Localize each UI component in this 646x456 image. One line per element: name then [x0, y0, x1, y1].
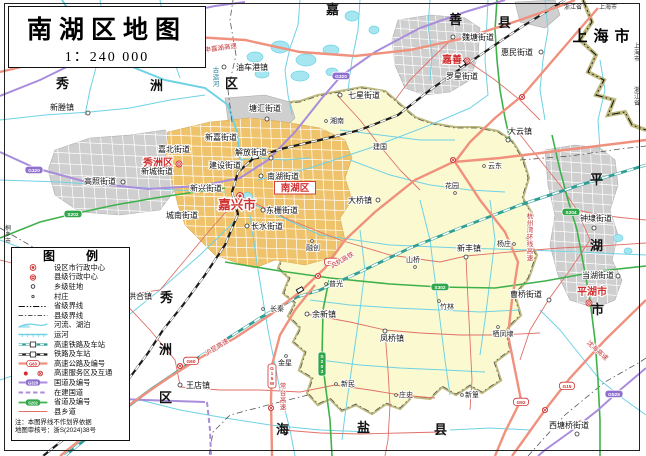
map-label-金星: 金星	[278, 358, 292, 367]
map-label-七星街道: 七星街道	[348, 90, 380, 100]
map-label-塘汇街道: 塘汇街道	[249, 103, 281, 113]
map-label-申嘉湖高速: 申嘉湖高速	[204, 41, 238, 55]
legend-label: 国道及编号	[54, 378, 90, 388]
svg-text:秀: 秀	[159, 290, 174, 305]
legend-label: 省道及编号	[54, 397, 90, 407]
svg-text:东栅街道: 东栅街道	[266, 205, 298, 215]
svg-text:盐: 盐	[357, 420, 371, 435]
svg-text:嘉: 嘉	[325, 2, 340, 17]
map-label-竹林: 竹林	[440, 302, 454, 311]
map-label-曹桥街道: 曹桥街道	[510, 289, 542, 299]
svg-text:塘汇街道: 塘汇街道	[249, 103, 281, 113]
symbol-interchange	[542, 407, 547, 412]
legend-label: 河流、湖泊	[54, 320, 90, 330]
legend-label: 村庄	[54, 292, 69, 302]
svg-text:栖凤埭: 栖凤埭	[493, 329, 514, 338]
symbol-village	[497, 326, 500, 329]
road-badge-G15W: G15W	[268, 364, 276, 388]
map-label-平: 平	[590, 172, 604, 187]
legend-label: 运河	[54, 330, 69, 340]
svg-text:G320: G320	[28, 168, 40, 174]
legend-label: 乡级驻地	[54, 282, 83, 292]
svg-text:平湖市: 平湖市	[577, 285, 607, 298]
map-label-沪昆高速: 沪昆高速	[203, 336, 230, 358]
map-scale: 1：240 000	[9, 46, 205, 66]
symbol-interchange	[268, 405, 273, 410]
symbol-town	[506, 138, 510, 142]
svg-text:罗星街道: 罗星街道	[446, 71, 478, 81]
legend: 图 例 设区市行政中心县级行政中心乡级驻地村庄省级界线县级界线河流、湖泊运河高速…	[11, 247, 130, 441]
map-label-大桥镇: 大桥镇	[348, 195, 372, 205]
legend-symbol-natl: G320	[15, 378, 51, 387]
map-label-县: 县	[498, 15, 512, 30]
map-label-新篁: 新篁	[465, 390, 479, 399]
svg-text:庄史: 庄史	[399, 390, 413, 399]
svg-text:湖: 湖	[590, 238, 604, 253]
symbol-town	[261, 208, 265, 212]
symbol-town	[178, 383, 182, 387]
svg-text:嘉兴市: 嘉兴市	[217, 197, 256, 212]
legend-symbol-city	[15, 263, 51, 272]
svg-text:新兴街道: 新兴街道	[190, 183, 222, 193]
svg-text:海: 海	[276, 422, 290, 437]
legend-note-boundary: 注：本图界线不作划界依据	[15, 419, 126, 427]
map-label-新丰镇: 新丰镇	[457, 243, 481, 253]
legend-item: 省级界线	[15, 301, 126, 311]
svg-text:当湖街道: 当湖街道	[582, 270, 614, 280]
symbol-village	[335, 383, 338, 386]
svg-text:七星街道: 七星街道	[348, 90, 380, 100]
road-badge-G60: G60	[184, 357, 199, 365]
svg-text:G525: G525	[608, 392, 620, 398]
symbol-town	[547, 298, 551, 302]
map-label-市: 市	[591, 302, 605, 317]
svg-text:洲: 洲	[150, 78, 164, 93]
legend-symbol-village	[15, 292, 51, 301]
map-label-洪合镇: 洪合镇	[128, 291, 152, 301]
svg-text:竹林: 竹林	[440, 302, 454, 311]
road-badge-S203: S203	[318, 352, 326, 376]
svg-text:浙江省: 浙江省	[634, 86, 640, 107]
map-page: S12G60G60G15WG92G15G524G320G320G525S202S…	[0, 0, 646, 456]
legend-symbol-natlc	[15, 388, 51, 397]
svg-text:沪昆高速: 沪昆高速	[203, 336, 230, 358]
map-label-建设街道: 建设街道	[209, 160, 241, 170]
svg-text:洪合镇: 洪合镇	[128, 291, 152, 301]
map-label-县: 县	[434, 422, 448, 437]
road-badge-S302: S302	[431, 283, 449, 291]
legend-label: 县级界线	[54, 311, 83, 321]
symbol-town	[464, 255, 468, 259]
svg-text:融创: 融创	[306, 243, 320, 252]
legend-item: 县级行政中心	[15, 273, 126, 283]
svg-text:G60: G60	[186, 359, 195, 365]
map-label-余新镇: 余新镇	[312, 309, 336, 319]
symbol-village	[454, 192, 457, 195]
map-label-魏塘街道: 魏塘街道	[462, 32, 494, 42]
svg-text:上海市: 上海市	[572, 27, 635, 45]
map-label-南湖区: 南湖区	[275, 182, 316, 195]
svg-text:市: 市	[591, 302, 605, 317]
map-label-嘉: 嘉	[325, 2, 340, 17]
svg-text:长水街道: 长水街道	[251, 221, 283, 231]
legend-item: 在建国道	[15, 388, 126, 398]
map-label-嘉善: 嘉善	[441, 53, 462, 66]
map-label-城南街道: 城南街道	[166, 210, 198, 220]
map-label-当湖街道: 当湖街道	[582, 270, 614, 280]
map-label-花园: 花园	[445, 181, 459, 190]
symbol-town	[383, 329, 387, 333]
legend-item: 铁路及车站	[15, 349, 126, 359]
legend-symbol-canal	[15, 330, 51, 339]
road-badge-G15: G15	[560, 382, 575, 390]
legend-title: 图 例	[15, 250, 126, 263]
legend-label: 省级界线	[54, 301, 83, 311]
symbol-interchange	[450, 157, 455, 162]
map-label-古运河: 古运河	[213, 65, 220, 88]
map-label-长水街道: 长水街道	[251, 221, 283, 231]
map-label-善: 善	[449, 12, 463, 27]
legend-symbol-cntyb	[15, 311, 51, 320]
map-label-杨庄: 杨庄	[497, 239, 511, 248]
legend-notes: 注：本图界线不作划界依据 地图审核号：浙S(2024)38号	[15, 419, 126, 435]
legend-label: 县级行政中心	[54, 272, 98, 282]
svg-text:上海市: 上海市	[599, 3, 617, 11]
svg-text:平: 平	[590, 172, 604, 187]
legend-symbol-rail	[15, 350, 51, 359]
map-label-王店镇: 王店镇	[186, 380, 210, 390]
map-label-新民: 新民	[341, 379, 355, 388]
svg-text:G320: G320	[335, 74, 347, 80]
symbol-town	[376, 198, 380, 202]
legend-label: 高速公路及编号	[54, 359, 105, 369]
map-label-秀: 秀	[55, 76, 70, 91]
svg-text:凤桥镇: 凤桥镇	[380, 333, 404, 343]
legend-items: 设区市行政中心县级行政中心乡级驻地村庄省级界线县级界线河流、湖泊运河高速铁路及车…	[15, 263, 126, 417]
symbol-village	[262, 308, 265, 311]
svg-text:G92: G92	[516, 400, 525, 406]
map-label-常台高速: 常台高速	[280, 381, 287, 411]
svg-text:新城街道: 新城街道	[141, 166, 173, 176]
svg-text:曹桥街道: 曹桥街道	[510, 289, 542, 299]
road-badge-G320: G320	[25, 166, 43, 174]
map-label-庄史: 庄史	[399, 390, 413, 399]
legend-item: 高速服务区及互通	[15, 369, 126, 379]
map-label-湘南: 湘南	[330, 116, 344, 125]
legend-item: 乡级驻地	[15, 282, 126, 292]
symbol-county	[176, 161, 182, 167]
map-label-秀: 秀	[159, 290, 174, 305]
legend-item: 高速铁路及车站	[15, 340, 126, 350]
symbol-village	[325, 120, 328, 123]
legend-symbol-county	[15, 273, 51, 282]
map-label-大云镇: 大云镇	[508, 126, 532, 136]
svg-text:S204: S204	[565, 210, 577, 216]
legend-item: 县级界线	[15, 311, 126, 321]
svg-text:南湖区: 南湖区	[281, 182, 310, 194]
symbol-town	[305, 312, 309, 316]
map-label-杭州湾环线高速: 杭州湾环线高速	[527, 211, 534, 262]
svg-text:南湖街道: 南湖街道	[267, 171, 299, 181]
road-badge-S202: S202	[64, 210, 82, 218]
svg-text:大云镇: 大云镇	[508, 126, 532, 136]
road-badge-G320: G320	[332, 72, 350, 80]
map-label-油车港镇: 油车港镇	[236, 62, 268, 72]
symbol-town	[259, 174, 263, 178]
symbol-village	[461, 394, 464, 397]
map-label-上海市: 上海市	[599, 3, 617, 11]
map-label-海: 海	[276, 422, 290, 437]
svg-text:S302: S302	[434, 285, 446, 291]
symbol-village	[438, 300, 441, 303]
map-label-上海市: 上海市	[634, 42, 640, 63]
map-label-新嘉街道: 新嘉街道	[205, 132, 237, 142]
svg-text:区: 区	[225, 76, 239, 91]
svg-text:钟埭街道: 钟埭街道	[580, 213, 612, 223]
map-label-区: 区	[159, 390, 173, 405]
symbol-town	[121, 180, 125, 184]
legend-note-approval: 地图审核号：浙S(2024)38号	[15, 427, 126, 435]
svg-text:余新镇: 余新镇	[312, 309, 336, 319]
svg-text:惠民街道: 惠民街道	[501, 47, 533, 57]
svg-text:西塘桥街道: 西塘桥街道	[549, 420, 589, 430]
svg-text:大桥镇: 大桥镇	[348, 195, 372, 205]
svg-text:县: 县	[498, 15, 512, 30]
svg-text:上海市: 上海市	[634, 42, 640, 63]
svg-text:花园: 花园	[445, 181, 459, 190]
svg-text:常台高速: 常台高速	[280, 381, 287, 411]
svg-text:G320: G320	[28, 381, 39, 386]
svg-text:魏塘街道: 魏塘街道	[462, 32, 494, 42]
svg-text:秀: 秀	[55, 76, 70, 91]
symbol-town	[86, 111, 90, 115]
map-label-平湖市: 平湖市	[577, 285, 607, 298]
legend-symbol-prov: S202	[15, 398, 51, 407]
svg-text:新篁: 新篁	[465, 390, 479, 399]
svg-text:洲: 洲	[159, 342, 173, 357]
legend-label: 设区市行政中心	[54, 263, 105, 273]
symbol-town	[575, 432, 579, 436]
svg-text:善: 善	[449, 12, 463, 27]
map-title: 南湖区地图	[9, 10, 205, 46]
map-label-桐乡市: 桐乡市	[5, 224, 11, 245]
legend-symbol-river	[15, 321, 51, 330]
map-label-新兴街道: 新兴街道	[190, 183, 222, 193]
legend-item: G60高速公路及编号	[15, 359, 126, 369]
symbol-town	[222, 65, 226, 69]
map-label-洲: 洲	[159, 342, 173, 357]
symbol-town	[265, 117, 269, 121]
symbol-village	[311, 240, 314, 243]
symbol-village	[325, 283, 328, 286]
map-label-湖: 湖	[590, 238, 604, 253]
symbol-village	[414, 266, 417, 269]
map-label-普光: 普光	[329, 279, 343, 288]
legend-item: 河流、湖泊	[15, 321, 126, 331]
symbol-town	[539, 50, 543, 54]
legend-label: 县乡道	[54, 407, 76, 417]
map-label-嘉兴市: 嘉兴市	[217, 197, 256, 212]
map-label-云东: 云东	[488, 161, 502, 170]
svg-text:金星: 金星	[278, 358, 292, 367]
svg-text:G15: G15	[562, 384, 571, 390]
legend-item: 运河	[15, 330, 126, 340]
map-label-南湖街道: 南湖街道	[267, 171, 299, 181]
svg-text:申嘉湖高速: 申嘉湖高速	[204, 41, 238, 55]
map-label-凤桥镇: 凤桥镇	[380, 333, 404, 343]
map-label-新塍镇: 新塍镇	[50, 102, 74, 112]
map-label-新城街道: 新城街道	[141, 166, 173, 176]
symbol-town	[616, 274, 620, 278]
svg-text:新民: 新民	[341, 379, 355, 388]
svg-text:湘南: 湘南	[330, 116, 344, 125]
legend-label: 铁路及车站	[54, 349, 90, 359]
legend-item: 设区市行政中心	[15, 263, 126, 273]
map-label-西塘桥街道: 西塘桥街道	[549, 420, 589, 430]
legend-symbol-town	[15, 282, 51, 291]
symbol-town	[338, 93, 342, 97]
map-label-罗星街道: 罗星街道	[446, 71, 478, 81]
symbol-town	[592, 226, 596, 230]
symbol-town	[451, 35, 455, 39]
national-road-under-construction	[207, 402, 211, 456]
map-label-融创: 融创	[306, 243, 320, 252]
map-label-盐: 盐	[357, 420, 371, 435]
svg-text:S202: S202	[28, 400, 38, 405]
svg-text:城南街道: 城南街道	[166, 210, 198, 220]
legend-symbol-expwy: G60	[15, 359, 51, 368]
symbol-interchange	[177, 363, 182, 368]
svg-text:杭州湾环线高速: 杭州湾环线高速	[527, 211, 534, 262]
svg-text:解放街道: 解放街道	[235, 147, 267, 157]
svg-text:新塍镇: 新塍镇	[50, 102, 74, 112]
svg-text:王店镇: 王店镇	[186, 380, 210, 390]
svg-text:杨庄: 杨庄	[497, 239, 511, 248]
symbol-village	[395, 394, 398, 397]
legend-item: G320国道及编号	[15, 378, 126, 388]
title-box: 南湖区地图 1：240 000	[8, 6, 206, 68]
svg-text:高照街道: 高照街道	[84, 176, 116, 186]
map-label-钟埭街道: 钟埭街道	[580, 213, 612, 223]
legend-symbol-cntyrd	[15, 407, 51, 416]
map-label-东栅街道: 东栅街道	[266, 205, 298, 215]
legend-label: 在建国道	[54, 388, 83, 398]
svg-text:普光: 普光	[329, 279, 343, 288]
legend-item: 村庄	[15, 292, 126, 302]
map-label-山桥: 山桥	[406, 255, 420, 264]
map-label-解放街道: 解放街道	[235, 147, 267, 157]
svg-text:浙江省: 浙江省	[564, 3, 582, 11]
symbol-town	[245, 224, 249, 228]
map-label-浙江省: 浙江省	[634, 86, 640, 107]
svg-text:嘉善: 嘉善	[441, 53, 462, 66]
svg-text:桐乡市: 桐乡市	[5, 224, 11, 245]
svg-text:建设街道: 建设街道	[209, 160, 241, 170]
svg-text:云东: 云东	[488, 161, 502, 170]
road-badge-G92: G92	[514, 398, 529, 406]
svg-text:油车港镇: 油车港镇	[236, 62, 268, 72]
svg-text:古运河: 古运河	[213, 65, 220, 88]
map-label-惠民街道: 惠民街道	[501, 47, 533, 57]
symbol-town	[269, 156, 273, 160]
legend-label: 高速服务区及互通	[54, 368, 112, 378]
svg-text:新嘉街道: 新嘉街道	[205, 132, 237, 142]
map-label-上海市: 上海市	[572, 27, 635, 45]
symbol-village	[483, 165, 486, 168]
svg-text:区: 区	[159, 390, 173, 405]
svg-text:县: 县	[434, 422, 448, 437]
legend-label: 高速铁路及车站	[54, 340, 105, 350]
map-label-洲: 洲	[150, 78, 164, 93]
symbol-interchange	[315, 273, 320, 278]
road-badge-S204: S204	[562, 208, 580, 216]
svg-text:建国: 建国	[373, 142, 387, 151]
legend-symbol-svc	[15, 369, 51, 378]
road-badge-G525: G525	[605, 390, 623, 398]
svg-text:嘉北街道: 嘉北街道	[158, 144, 190, 154]
svg-text:长秦: 长秦	[270, 304, 284, 313]
svg-text:新丰镇: 新丰镇	[457, 243, 481, 253]
legend-symbol-provb	[15, 302, 51, 311]
svg-text:G60: G60	[29, 362, 38, 367]
symbol-interchange	[519, 94, 524, 99]
urban-pinghu	[545, 145, 622, 308]
symbol-village	[285, 355, 288, 358]
symbol-village	[513, 243, 516, 246]
legend-item: 县乡道	[15, 407, 126, 417]
legend-symbol-hsr	[15, 340, 51, 349]
map-label-浙江省: 浙江省	[564, 3, 582, 11]
map-label-栖凤埭: 栖凤埭	[493, 329, 514, 338]
legend-item: S202省道及编号	[15, 397, 126, 407]
map-label-区: 区	[225, 76, 239, 91]
map-label-嘉北街道: 嘉北街道	[158, 144, 190, 154]
map-label-高照街道: 高照街道	[84, 176, 116, 186]
svg-text:S202: S202	[67, 212, 79, 218]
svg-text:山桥: 山桥	[406, 255, 420, 264]
map-label-长秦: 长秦	[270, 304, 284, 313]
map-label-建国: 建国	[373, 142, 387, 151]
